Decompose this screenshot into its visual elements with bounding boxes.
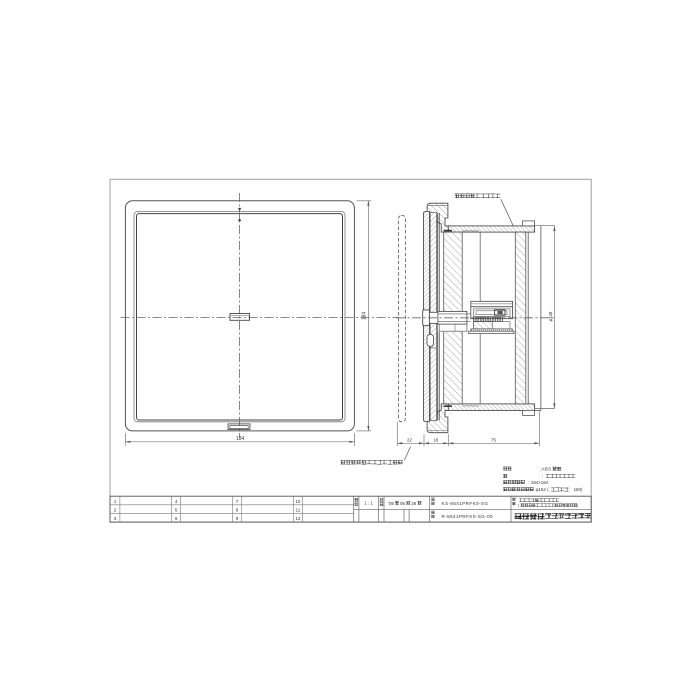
svg-text:): ) (577, 504, 578, 508)
svg-text:4: 4 (175, 499, 178, 504)
svg-text:9: 9 (236, 516, 239, 521)
svg-text:6: 6 (175, 516, 178, 521)
svg-text:10: 10 (295, 499, 301, 504)
svg-text:φ148: φ148 (548, 311, 553, 321)
svg-text:KS-8641PRFK0-SG: KS-8641PRFK0-SG (442, 501, 489, 506)
svg-text:: φ152: : φ152 (533, 487, 546, 492)
svg-text:11: 11 (296, 508, 301, 513)
svg-text:1: 1 (114, 499, 117, 504)
svg-text:26: 26 (411, 501, 416, 506)
svg-text:1 : 1: 1 : 1 (364, 501, 373, 506)
svg-text:3: 3 (114, 516, 117, 521)
svg-text:184×184: 184×184 (531, 480, 549, 485)
svg-text:184: 184 (236, 436, 245, 442)
svg-text::: : (528, 480, 529, 485)
svg-text:ABS: ABS (542, 466, 552, 471)
svg-text::: : (542, 474, 543, 479)
svg-text:18: 18 (433, 438, 438, 443)
svg-text:150): 150) (574, 487, 583, 492)
svg-text:12: 12 (295, 516, 301, 521)
svg-text::: : (540, 466, 541, 471)
svg-text:184: 184 (361, 312, 367, 321)
svg-text:7: 7 (236, 499, 239, 504)
svg-text:75: 75 (491, 438, 496, 443)
svg-text:'09: '09 (388, 501, 394, 506)
svg-text:5: 5 (175, 508, 178, 513)
svg-text:R-8641PRFK0-SG-00: R-8641PRFK0-SG-00 (442, 514, 494, 519)
svg-text:8: 8 (236, 508, 239, 513)
svg-text:2: 2 (114, 508, 117, 513)
svg-text:06: 06 (400, 501, 405, 506)
svg-text:22: 22 (407, 438, 412, 443)
